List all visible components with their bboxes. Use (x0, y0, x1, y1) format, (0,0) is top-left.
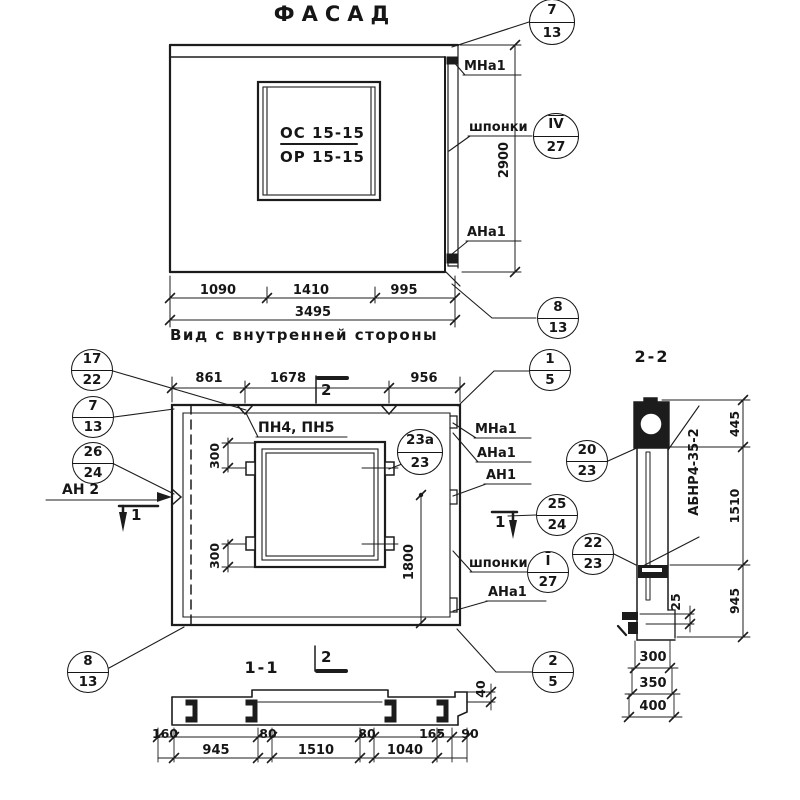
callout-number-bottom: 23 (398, 452, 442, 475)
facade-dim-height: 2900 (495, 130, 513, 190)
callout-facade-shponki-iv-27: IV 27 (533, 113, 579, 159)
panel-mark-numerator: ОС 15-15 (280, 124, 358, 142)
callout-number-top: I (528, 552, 568, 572)
facade-dim-1410: 1410 (283, 283, 339, 298)
callout-1-5: 1 5 (529, 349, 571, 391)
callout-number-bottom: 5 (530, 370, 570, 391)
callout-26-24: 26 24 (72, 442, 114, 484)
dim-1510-right: 1510 (725, 476, 743, 536)
dim-945-right: 945 (725, 571, 743, 631)
drawing-linework (0, 0, 800, 800)
callout-number-bottom: 27 (528, 572, 568, 593)
dim-160: 160 (147, 726, 183, 741)
callout-number-bottom: 23 (567, 461, 607, 482)
inner-dim-300-bottom: 300 (205, 526, 223, 586)
dim-1040: 1040 (384, 743, 426, 758)
dim-945: 945 (198, 743, 234, 758)
callout-number-top: IV (534, 114, 578, 136)
callout-number-bottom: 23 (573, 554, 613, 575)
callout-facade-top-7-13: 7 13 (529, 0, 575, 45)
callout-number-bottom: 13 (538, 318, 578, 339)
callout-20-23: 20 23 (566, 440, 608, 482)
callout-number-top: 17 (72, 350, 112, 370)
callout-number-bottom: 24 (537, 515, 577, 536)
callout-number-bottom: 5 (533, 672, 573, 693)
callout-number-top: 20 (567, 441, 607, 461)
callout-number-top: 8 (68, 652, 108, 672)
dim-350-bottom: 350 (634, 676, 672, 691)
dim-80-left: 80 (250, 726, 286, 741)
section-1-marker-right-label: 1 (495, 513, 506, 531)
dim-300-bottom: 300 (634, 650, 672, 665)
inner-label-mna1: МНа1 (475, 422, 517, 437)
dim-40: 40 (471, 659, 489, 719)
section-2-2-title: 2-2 (626, 347, 678, 366)
callout-number-bottom: 13 (73, 417, 113, 438)
dim-165: 165 (413, 726, 451, 741)
callout-number-bottom: 13 (68, 672, 108, 693)
callout-22-23: 22 23 (572, 533, 614, 575)
callout-2-5: 2 5 (532, 651, 574, 693)
label-an2: АН 2 (62, 482, 99, 498)
callout-number-top: 7 (530, 0, 574, 22)
inner-dim-300-top: 300 (205, 426, 223, 486)
product-mark-abnr: АБНР4-35-2 (685, 417, 703, 527)
inner-label-ana1-top: АНа1 (477, 446, 516, 461)
inner-label-shponki: шпонки (469, 556, 528, 571)
dim-25: 25 (666, 574, 684, 630)
callout-number-top: 22 (573, 534, 613, 554)
section-2-marker-top: 2 (321, 381, 332, 399)
panel-mark-denominator: ОР 15-15 (280, 148, 358, 166)
dim-400-bottom: 400 (634, 699, 672, 714)
section-1-1-lines (172, 646, 467, 725)
callout-number-top: 26 (73, 443, 113, 463)
callout-number-bottom: 24 (73, 463, 113, 484)
inner-label-ana1-bottom: АНа1 (488, 585, 527, 600)
callout-7-13: 7 13 (72, 396, 114, 438)
callout-23a-23: 23а 23 (397, 429, 443, 475)
callout-number-bottom: 13 (530, 22, 574, 45)
inner-dim-956: 956 (400, 371, 448, 386)
facade-label-ana1: АНа1 (467, 225, 506, 240)
callout-shponki-i-27: I 27 (527, 551, 569, 593)
callout-number-top: 7 (73, 397, 113, 417)
facade-dim-995: 995 (378, 283, 430, 298)
dim-80-right: 80 (349, 726, 385, 741)
dim-445: 445 (725, 394, 743, 454)
callout-number-top: 25 (537, 495, 577, 515)
facade-dim-1090: 1090 (190, 283, 246, 298)
callout-25-24: 25 24 (536, 494, 578, 536)
facade-label-mna1: МНа1 (464, 59, 506, 74)
dim-90: 90 (452, 726, 488, 741)
callout-number-bottom: 22 (72, 370, 112, 391)
section-1-1-title: 1-1 (238, 658, 286, 677)
dim-1510-bottom: 1510 (295, 743, 337, 758)
drawing-sheet: ФАСАД ОС 15-15 ОР 15-15 МНа1 шпонки АНа1… (0, 0, 800, 800)
inner-dim-1678: 1678 (262, 371, 314, 386)
inner-dim-lines (168, 376, 465, 628)
inner-label-an1: АН1 (486, 468, 516, 483)
callout-number-top: 23а (398, 430, 442, 452)
inner-dim-1800: 1800 (400, 532, 418, 592)
inner-view-title: Вид с внутренней стороны (170, 326, 435, 344)
callout-number-bottom: 27 (534, 136, 578, 159)
section-1-marker-left-label: 1 (131, 506, 142, 524)
facade-dim-total: 3495 (285, 305, 341, 320)
facade-title: ФАСАД (250, 2, 420, 26)
callout-number-top: 2 (533, 652, 573, 672)
label-pn4-pn5: ПН4, ПН5 (258, 420, 335, 436)
callout-number-top: 8 (538, 298, 578, 318)
inner-dim-861: 861 (185, 371, 233, 386)
callout-number-top: 1 (530, 350, 570, 370)
callout-8-13-bottom: 8 13 (67, 651, 109, 693)
section-2-marker-bottom: 2 (321, 648, 332, 666)
callout-17-22: 17 22 (71, 349, 113, 391)
callout-facade-bottom-8-13: 8 13 (537, 297, 579, 339)
